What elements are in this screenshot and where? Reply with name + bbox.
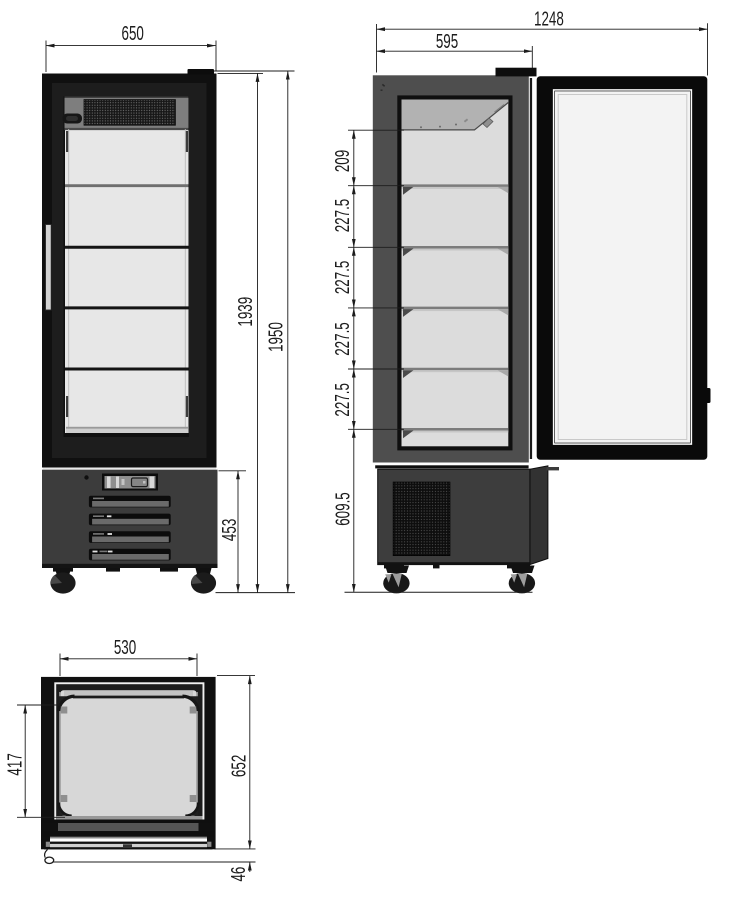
svg-text:46: 46: [227, 867, 249, 882]
svg-text:530: 530: [114, 636, 136, 658]
svg-text:652: 652: [228, 755, 250, 777]
svg-text:417: 417: [4, 753, 26, 775]
svg-text:1950: 1950: [265, 322, 287, 352]
svg-text:227.5: 227.5: [331, 383, 353, 417]
svg-text:227.5: 227.5: [331, 261, 353, 295]
svg-text:227.5: 227.5: [331, 322, 353, 356]
svg-text:1939: 1939: [234, 297, 256, 327]
svg-text:1248: 1248: [534, 8, 564, 30]
svg-text:209: 209: [331, 150, 353, 172]
svg-text:650: 650: [122, 22, 144, 44]
svg-text:609.5: 609.5: [332, 492, 354, 526]
svg-text:453: 453: [218, 519, 240, 541]
svg-text:227.5: 227.5: [331, 199, 353, 233]
svg-text:595: 595: [436, 30, 458, 52]
